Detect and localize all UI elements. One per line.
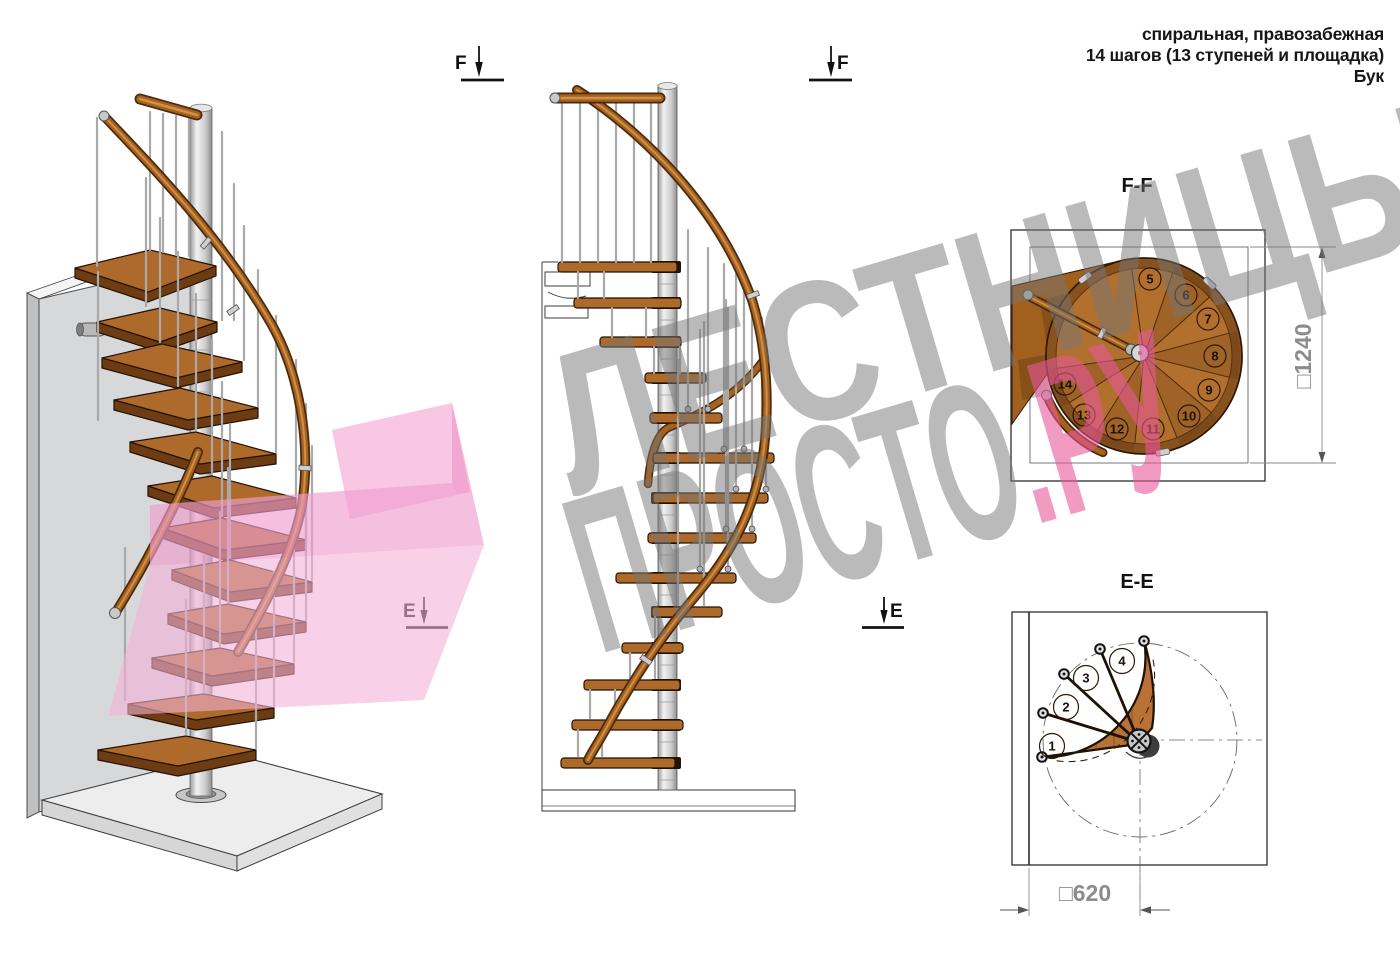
step-number: 3 xyxy=(1082,671,1089,686)
rail-end-cap xyxy=(110,608,121,619)
tread xyxy=(558,262,677,272)
tread xyxy=(600,337,681,347)
step-number: 6 xyxy=(1182,288,1189,303)
marker-f-left: F xyxy=(455,46,504,80)
wall-side-edge xyxy=(27,293,39,818)
view-elevation xyxy=(542,83,795,812)
step-number: 10 xyxy=(1182,409,1196,424)
step-number: 8 xyxy=(1211,349,1218,364)
section-ee: E-E xyxy=(1000,571,1267,916)
marker-e-right: E xyxy=(862,597,904,628)
step-number: 4 xyxy=(1118,654,1126,669)
title-line-material: Бук xyxy=(1086,66,1384,87)
marker-letter: E xyxy=(890,601,903,622)
rail-end-cap xyxy=(550,93,560,103)
rail-end-cap xyxy=(99,111,109,121)
step-number: 7 xyxy=(1204,312,1211,327)
drawing-canvas: F-F xyxy=(0,0,1400,961)
marker-letter: F xyxy=(837,53,849,74)
floor-section xyxy=(542,790,795,811)
section-ff: F-F xyxy=(1011,175,1336,481)
tread xyxy=(572,720,683,730)
step-number: 11 xyxy=(1146,422,1160,437)
section-ee-title: E-E xyxy=(1120,571,1153,593)
title-line-type: спиральная, правозабежная xyxy=(1086,24,1384,45)
ff-dimension-label: □1240 xyxy=(1290,323,1316,388)
tread xyxy=(574,298,681,308)
rail-end-cap xyxy=(1023,290,1033,300)
marker-letter: F xyxy=(455,53,467,74)
step-number: 9 xyxy=(1205,383,1212,398)
technical-drawing: F-F xyxy=(0,0,1400,961)
step-number: 2 xyxy=(1062,700,1069,715)
tread xyxy=(650,413,722,423)
view-3d-perspective xyxy=(27,99,382,871)
ee-dimension: □620 xyxy=(1000,868,1170,916)
step-number: 12 xyxy=(1110,422,1124,437)
step-number: 5 xyxy=(1146,272,1153,287)
wall-section-outline xyxy=(542,262,590,790)
step-number: 13 xyxy=(1077,408,1091,423)
title-line-steps: 14 шагов (13 ступеней и площадка) xyxy=(1086,45,1384,66)
step-number: 1 xyxy=(1048,739,1055,754)
title-block: спиральная, правозабежная 14 шагов (13 с… xyxy=(1086,24,1384,87)
step-number: 14 xyxy=(1058,377,1073,392)
tread xyxy=(645,373,706,383)
rail-end-cap xyxy=(1042,390,1052,400)
ee-dimension-label: □620 xyxy=(1059,880,1111,906)
section-ff-title: F-F xyxy=(1121,175,1152,197)
tread xyxy=(561,758,675,768)
tread xyxy=(653,453,774,463)
marker-f-right: F xyxy=(809,46,852,80)
